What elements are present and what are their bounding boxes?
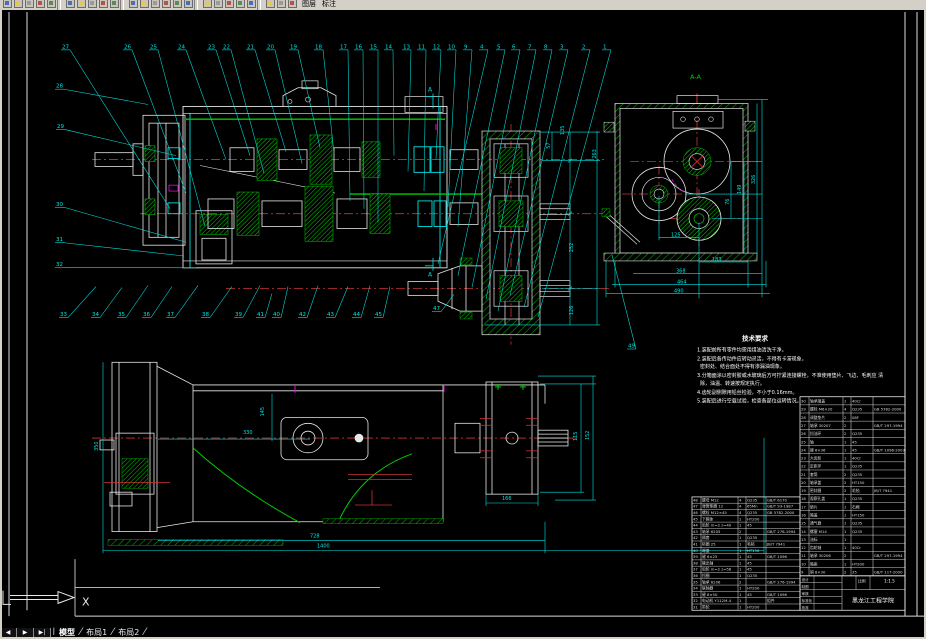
callout-label: 1 <box>603 44 606 50</box>
open-icon[interactable] <box>13 0 22 8</box>
callout-label: 20 <box>267 44 275 50</box>
dim-label: 728 <box>310 533 320 539</box>
notes-line: 1.装配前所有零件均需用煤油清洗干净。 <box>697 347 787 354</box>
bom-cell: 1 <box>739 606 742 610</box>
title-block-field: 制图 <box>802 584 810 589</box>
bom-cell: Q235 <box>747 498 758 502</box>
callout-label: 5 <box>497 44 500 50</box>
bom-cell: 40Cr <box>852 457 861 461</box>
bom-cell: 32 <box>693 599 698 603</box>
print-icon[interactable] <box>35 0 44 8</box>
bom-cell: 1 <box>739 543 742 547</box>
bom-cell: 14 <box>801 530 806 534</box>
undo-icon[interactable] <box>128 0 137 8</box>
zoom-window-icon[interactable] <box>172 0 181 8</box>
area-icon[interactable] <box>213 0 222 8</box>
dim-label: 135 <box>560 126 566 135</box>
notes-line: 3.分箱面涂以密封胶或水玻璃后方可拧紧连接螺栓，不准使用垫片、飞边、毛刺应 清 <box>697 372 883 379</box>
bom-cell: 端盖 <box>702 548 710 553</box>
bom-cell: Q235 <box>852 530 863 534</box>
bom-cell: 13 <box>801 538 806 542</box>
tab-布局2[interactable]: 布局2 <box>115 627 142 638</box>
bom-cell: 挡油环 <box>810 431 822 436</box>
bom-cell: Q235 <box>852 522 863 526</box>
bom-cell: 21 <box>801 473 806 477</box>
bom-cell: Q235 <box>852 497 863 501</box>
bom-cell: 23 <box>801 457 806 461</box>
layer-state-icon[interactable] <box>235 0 244 8</box>
tab-模型[interactable]: 模型 <box>56 627 78 638</box>
callout-label: 11 <box>418 44 425 50</box>
toolbar-separator <box>257 0 261 10</box>
bom-cell: GB 5782-2000 <box>767 511 795 515</box>
bom-cell: 轴承盖 <box>810 480 822 485</box>
bom-cell: 30 <box>801 400 806 404</box>
bom-cell: 通气器 <box>810 521 822 526</box>
bom-cell: 1 <box>844 448 847 452</box>
callout-45: 45 <box>374 287 390 319</box>
crosshair-cursor[interactable] <box>75 559 380 616</box>
callout-42: 42 <box>298 286 318 318</box>
bom-cell: 弹簧垫圈 12 <box>702 504 724 509</box>
bom-cell: 轴 <box>810 439 814 444</box>
bom-cell: 35 <box>852 571 857 575</box>
callout-44: 44 <box>352 286 370 318</box>
callout-label: 16 <box>355 44 363 50</box>
bom-cell: 31 <box>693 606 698 610</box>
layout-tab-bar: ◀▶▶|\模型/布局1/布局2/ <box>0 627 926 637</box>
spell-icon[interactable] <box>65 0 74 8</box>
callout-19: 19 <box>289 44 320 147</box>
callout-label: 4 <box>480 44 484 50</box>
bom-cell: 1 <box>739 574 742 578</box>
bom-cell: 毡圈 25 <box>702 542 716 547</box>
callout-label: 12 <box>433 44 440 50</box>
bom-cell: 1 <box>844 440 847 444</box>
title-block-field: 标准化 <box>802 598 813 603</box>
aa-gears <box>632 129 730 240</box>
bom-cell: 28 <box>801 416 806 420</box>
bom-cell: HT200 <box>852 562 865 566</box>
bom-cell: 43 <box>693 530 698 534</box>
bom-cell: 1 <box>844 522 847 526</box>
bom-cell: 1 <box>739 517 742 521</box>
callout-label: 28 <box>56 84 64 90</box>
bom-cell: HT150 <box>852 481 865 485</box>
bom-cell: 19 <box>801 489 806 493</box>
bom-cell: 输出轴 <box>702 560 714 565</box>
redo-icon[interactable] <box>139 0 148 8</box>
distance-icon[interactable] <box>202 0 211 8</box>
bom-cell: 1 <box>844 530 847 534</box>
bom-cell: 17 <box>801 505 806 509</box>
callout-49: 49 <box>612 255 636 349</box>
bom-cell: 箱盖 <box>810 513 818 518</box>
callout-label: 25 <box>150 44 157 50</box>
bom-cell: 25 <box>801 440 806 444</box>
bom-cell: 40Cr <box>852 400 861 404</box>
layer-manager-icon[interactable] <box>224 0 233 8</box>
bom-cell: 定距环 <box>810 464 822 469</box>
bom-cell: 带轮 <box>702 605 710 610</box>
bom-cell: HT150 <box>852 514 865 518</box>
callout-label: 27 <box>62 44 69 50</box>
bom-cell: 组件 <box>767 598 775 603</box>
callout-label: 15 <box>370 44 377 50</box>
notes-line: 5.装配后进行空载试验，检查各部位运转情况。 <box>697 398 802 405</box>
bom-cell: 螺栓 M6×20 <box>810 407 833 412</box>
aa-dipstick <box>604 213 640 244</box>
bom-cell: 毛毡 <box>747 542 755 547</box>
bom-cell: 45 <box>747 593 752 597</box>
section-line-A <box>425 94 433 271</box>
bom-cell: 39 <box>693 555 698 559</box>
bom-cell: 37 <box>693 568 698 572</box>
bom-cell: 1 <box>844 465 847 469</box>
cad-drawing: 2726252423222120191817161514131112109456… <box>0 10 926 627</box>
callout-label: 26 <box>124 44 132 50</box>
title-block: 设计制图审核标准化批准比例1:1.5黑龙江工程学院 <box>800 576 905 610</box>
bom-cell: 1 <box>844 505 847 509</box>
bom-cell: Q235 <box>747 536 758 540</box>
bom-cell: 箱座 <box>810 561 818 566</box>
pan-icon[interactable] <box>150 0 159 8</box>
callout-13: 13 <box>402 44 411 171</box>
bom-cell: 20 <box>801 481 806 485</box>
bom-cell: 1 <box>844 514 847 518</box>
bom-cell: HT200 <box>747 587 760 591</box>
bom-table-left: 48螺母 M124Q235GB/T 617047弹簧垫圈 12465MnGB/T… <box>692 497 800 610</box>
autocad-window: 图层标注 <box>0 0 926 639</box>
bom-cell: 1 <box>739 599 742 603</box>
bom-cell: 29 <box>801 408 806 412</box>
callout-4: 4 <box>438 44 488 263</box>
gearbox-gear-hatch <box>499 148 523 302</box>
bom-cell: 2 <box>844 424 847 428</box>
callout-label: 41 <box>257 312 264 318</box>
callout-label: 10 <box>448 44 456 50</box>
callout-label: 34 <box>92 312 100 318</box>
callout-label: 40 <box>273 312 281 318</box>
bom-cell: Q235 <box>747 574 758 578</box>
bom-cell: 1 <box>739 524 742 528</box>
bom-cell: GB/T 6170 <box>767 498 788 502</box>
callout-label: 7 <box>528 44 531 50</box>
bom-cell: 轴承端盖 <box>810 399 825 404</box>
dim-label: 152 <box>585 431 591 440</box>
dim-label: 1400 <box>317 543 330 549</box>
dim-label: X <box>82 595 90 608</box>
callout-27: 27 <box>61 44 170 208</box>
bom-cell: 4 <box>739 511 742 515</box>
bom-cell: GB/T 297-1994 <box>874 424 903 428</box>
scale-value: 1:1.5 <box>884 579 895 584</box>
bom-cell: 16 <box>801 514 806 518</box>
callout-14: 14 <box>384 44 394 155</box>
notes-line: 除，油温、转速按规定执行。 <box>700 380 765 387</box>
title-block-field: 批准 <box>802 605 810 610</box>
bom-cell: 46 <box>693 511 698 515</box>
bom-cell: GB/T 117-2000 <box>874 571 903 575</box>
bom-cell: GB/T 276-1994 <box>767 580 796 584</box>
bom-cell: 键 8×36 <box>810 447 826 452</box>
bom-cell: 40 <box>693 549 698 553</box>
title-block-field: 设计 <box>802 577 810 582</box>
bom-cell: 2 <box>844 416 847 420</box>
bom-cell: 毛毡 <box>852 488 860 493</box>
dim-label: A-A <box>690 73 702 81</box>
tab-divider: / <box>142 627 148 637</box>
callout-label: 23 <box>208 44 216 50</box>
bom-cell: 齿轮轴 <box>810 545 822 550</box>
bom-cell: GB/T 276-1994 <box>767 530 796 534</box>
bom-cell: 石棉 <box>852 504 860 509</box>
bom-cell: 45 <box>747 568 752 572</box>
bom-cell: 4 <box>739 505 742 509</box>
bom-cell: 42 <box>693 536 698 540</box>
bom-cell: 65Mn <box>747 505 758 509</box>
dim-label: 368 <box>676 269 686 275</box>
bom-cell: 1 <box>844 538 847 542</box>
tab-布局1[interactable]: 布局1 <box>83 627 110 638</box>
bom-cell: 40Cr <box>852 546 861 550</box>
callout-label: 21 <box>247 44 254 50</box>
callout-label: 39 <box>235 312 243 318</box>
bom-cell: 大齿轮 <box>810 456 822 461</box>
callout-label: 45 <box>375 312 382 318</box>
callout-25: 25 <box>149 44 205 226</box>
bom-cell: 1 <box>739 549 742 553</box>
bom-cell: 4 <box>739 498 742 502</box>
bom-cell: 1 <box>844 546 847 550</box>
save-icon[interactable] <box>24 0 33 8</box>
bom-cell: 轴承 30207 <box>810 423 831 428</box>
bom-cell: 45 <box>747 561 752 565</box>
bom-cell: 10 <box>801 562 806 566</box>
bom-cell: 轴承 30206 <box>810 553 831 558</box>
bom-cell: Q235 <box>852 465 863 469</box>
bom-cell: 轴承 6206 <box>702 579 721 584</box>
notes-line: 4.齿轮副侧隙用铅丝检验，不小于0.16mm。 <box>697 389 798 396</box>
bom-cell: 33 <box>693 593 698 597</box>
callout-9: 9 <box>458 44 472 226</box>
callout-label: 49 <box>628 344 636 350</box>
bom-cell: 1 <box>844 400 847 404</box>
dim-label: 149 <box>737 185 743 194</box>
callout-11: 11 <box>417 44 426 191</box>
bom-cell: 垫片 <box>810 504 818 509</box>
dim-label: 350 <box>94 441 100 450</box>
dim-label: 125 <box>671 232 681 238</box>
bom-cell: 1 <box>844 457 847 461</box>
callout-label: 30 <box>56 202 64 208</box>
callout-28: 28 <box>55 84 148 105</box>
bom-cell: 08F <box>852 416 859 420</box>
bom-cell: 密封圈 <box>810 488 822 493</box>
callout-label: 43 <box>327 312 335 318</box>
ucs-icon <box>3 591 74 605</box>
table-style-icon[interactable] <box>287 0 296 8</box>
callout-10: 10 <box>447 44 456 206</box>
bom-cell: GB/T 1096 <box>767 593 788 597</box>
main-view-green-lines <box>186 119 487 194</box>
bom-cell: 47 <box>693 505 698 509</box>
callout-label: 2 <box>582 44 585 50</box>
bom-table-right: 30轴承端盖140Cr29螺栓 M6×204Q235GB 5782-200028… <box>800 397 906 576</box>
callout-33: 33 <box>59 287 96 319</box>
bom-cell: 24 <box>801 448 806 452</box>
callout-label: 9 <box>464 44 468 50</box>
dim-label: 490 <box>674 288 684 294</box>
tab-nav-button[interactable]: ▶| <box>34 628 51 637</box>
callout-label: 22 <box>223 44 230 50</box>
bom-cell: 1 <box>739 561 742 565</box>
bom-cell: 下箱体 <box>702 516 714 521</box>
toolbar-separator <box>120 0 124 10</box>
dim-style-icon[interactable] <box>276 0 285 8</box>
bom-cell: 隔套 <box>702 535 710 540</box>
bom-cell: 4 <box>844 408 847 412</box>
new-icon[interactable] <box>2 0 11 8</box>
bom-cell: 45 <box>693 517 698 521</box>
callout-43: 43 <box>326 287 348 319</box>
bom-cell: GB/T 297-1994 <box>874 554 903 558</box>
scale-label: 比例 <box>858 579 866 584</box>
bom-cell: 2 <box>844 473 847 477</box>
bom-cell: 27 <box>801 424 806 428</box>
dim-label: A <box>428 272 433 279</box>
callout-label: 19 <box>290 44 298 50</box>
bom-cell: 1 <box>739 555 742 559</box>
paste-icon[interactable] <box>98 0 107 8</box>
callout-17: 17 <box>339 44 350 200</box>
callout-label: 44 <box>353 312 361 318</box>
callout-16: 16 <box>354 44 364 208</box>
bom-cell: 挡圈 <box>702 573 710 578</box>
dim-label: 252 <box>569 243 575 252</box>
callout-label: 6 <box>512 44 516 50</box>
bom-cell: 1 <box>739 568 742 572</box>
bom-cell: 45 <box>747 555 752 559</box>
bom-cell: 键 6×25 <box>702 554 718 559</box>
callout-label: 29 <box>57 124 65 130</box>
notes-title: 技术要求 <box>742 334 769 343</box>
dim-label: 57 <box>546 142 552 148</box>
callout-40: 40 <box>272 287 288 319</box>
gearbox-housing <box>482 131 570 335</box>
dim-label: 145 <box>260 407 266 416</box>
zoom-realtime-icon[interactable] <box>161 0 170 8</box>
bom-cell: 34 <box>693 587 698 591</box>
callout-38: 38 <box>201 287 232 319</box>
callout-label: 35 <box>118 312 125 318</box>
copy-icon[interactable] <box>87 0 96 8</box>
callout-31: 31 <box>55 237 184 256</box>
dim-label: A <box>428 87 433 94</box>
organization-name: 黑龙江工程学院 <box>852 596 894 604</box>
bom-cell: 销 8×30 <box>810 570 826 575</box>
dim-label: 330 <box>243 430 253 436</box>
callout-label: 18 <box>315 44 323 50</box>
bom-cell: HT200 <box>747 517 760 521</box>
callout-label: 24 <box>178 44 186 50</box>
callout-37: 37 <box>166 286 198 318</box>
callout-label: 33 <box>60 312 68 318</box>
callout-24: 24 <box>177 44 226 159</box>
bom-cell: 齿轮 m=2 z=40 <box>702 523 732 528</box>
callout-label: 47 <box>433 306 440 312</box>
bom-cell: 2 <box>844 481 847 485</box>
bom-cell: 11 <box>801 554 806 558</box>
bom-cell: GB/T 93-1987 <box>767 505 794 509</box>
bom-cell: 2 <box>739 580 742 584</box>
preview-icon[interactable] <box>46 0 55 8</box>
aa-frame <box>615 96 748 258</box>
toolbar-separator <box>57 0 61 10</box>
toolbar-label: 标注 <box>322 0 336 9</box>
text-style-icon[interactable] <box>265 0 274 8</box>
bom-cell: 1 <box>844 497 847 501</box>
window-border-left <box>0 10 2 637</box>
bom-cell: 45 <box>852 448 857 452</box>
bom-cell: 套筒 <box>810 472 818 477</box>
drawing-canvas[interactable]: 2726252423222120191817161514131112109456… <box>0 10 926 627</box>
match-properties-icon[interactable] <box>109 0 118 8</box>
properties-icon[interactable] <box>246 0 255 8</box>
tab-nav-button[interactable]: ▶ <box>17 628 34 637</box>
bom-cell: 1 <box>739 593 742 597</box>
notes-line: 2.装配后各传动件应转动灵活，不得有卡滞现象， <box>697 355 807 362</box>
bom-cell: Q235 <box>747 511 758 515</box>
bom-cell: Q235 <box>852 432 863 436</box>
toolbar-label: 图层 <box>302 0 316 9</box>
bom-cell: 2 <box>844 554 847 558</box>
tab-nav-button[interactable]: ◀ <box>0 628 17 637</box>
bom-cell: 螺栓 M12×45 <box>702 510 727 515</box>
bom-cell: 45 <box>747 524 752 528</box>
aa-frame-hatch <box>615 103 748 257</box>
notes-line: 密封处、结合面处不得有渗漏油现象。 <box>700 363 785 370</box>
callout-label: 13 <box>403 44 411 50</box>
bom-cell: GB/T 1096 <box>767 555 788 559</box>
bom-cell: 36 <box>693 574 698 578</box>
callout-23: 23 <box>207 44 250 155</box>
callout-label: 36 <box>143 312 151 318</box>
bom-cell: 电动机 Y112M-4 <box>702 598 732 603</box>
callout-41: 41 <box>256 293 272 318</box>
dim-label: 76 <box>725 199 731 205</box>
bom-cell: 22 <box>801 465 806 469</box>
bom-cell: GB 5782-2000 <box>874 408 902 412</box>
bom-cell: 45 <box>852 440 857 444</box>
callout-1: 1 <box>538 44 611 317</box>
bom-cell: 48 <box>693 498 698 502</box>
callout-label: 3 <box>560 44 564 50</box>
cut-icon[interactable] <box>76 0 85 8</box>
callout-label: 37 <box>167 312 174 318</box>
bom-cell: 35 <box>693 580 698 584</box>
bom-cell: 1 <box>844 562 847 566</box>
bom-cell: HT200 <box>747 606 760 610</box>
bom-cell: GB/T 1096-2003 <box>874 448 906 452</box>
zoom-previous-icon[interactable] <box>183 0 192 8</box>
bom-cell: 轴承 6205 <box>702 529 721 534</box>
bom-cell: 齿轮 m=2 z=58 <box>702 567 732 572</box>
bom-cell: HT150 <box>747 549 760 553</box>
callout-21: 21 <box>246 44 286 151</box>
callout-label: 31 <box>56 237 63 243</box>
bom-cell: Q235 <box>852 408 863 412</box>
